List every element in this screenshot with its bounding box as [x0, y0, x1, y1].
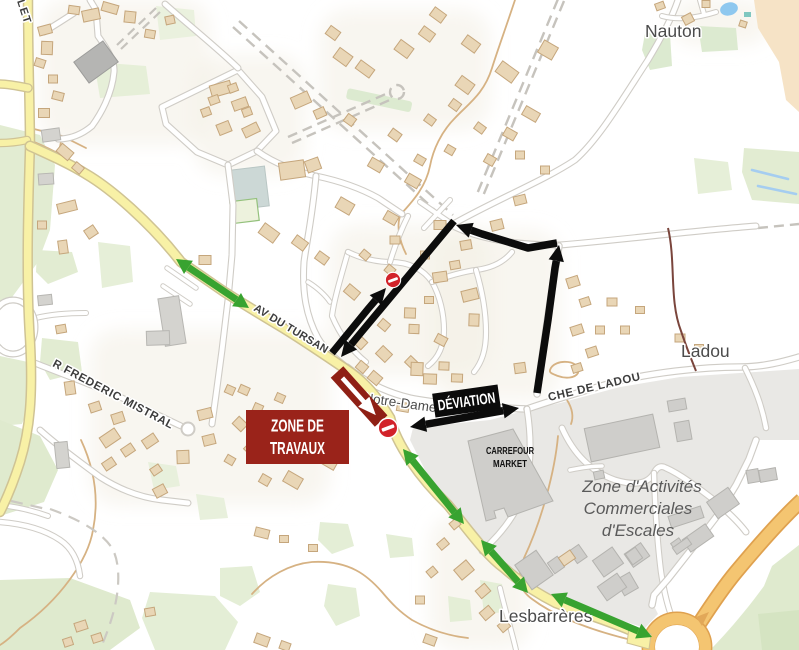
svg-text:Commerciales: Commerciales: [584, 499, 693, 518]
svg-text:Nauton: Nauton: [645, 21, 701, 41]
svg-text:TRAVAUX: TRAVAUX: [270, 438, 325, 458]
svg-text:MARKET: MARKET: [493, 458, 527, 470]
svg-text:d'Escales: d'Escales: [602, 521, 675, 540]
svg-text:ZONE DE: ZONE DE: [271, 416, 324, 436]
svg-text:Ladou: Ladou: [681, 341, 730, 361]
svg-text:CARREFOUR: CARREFOUR: [486, 445, 534, 457]
svg-text:Zone d'Activités: Zone d'Activités: [581, 477, 702, 496]
